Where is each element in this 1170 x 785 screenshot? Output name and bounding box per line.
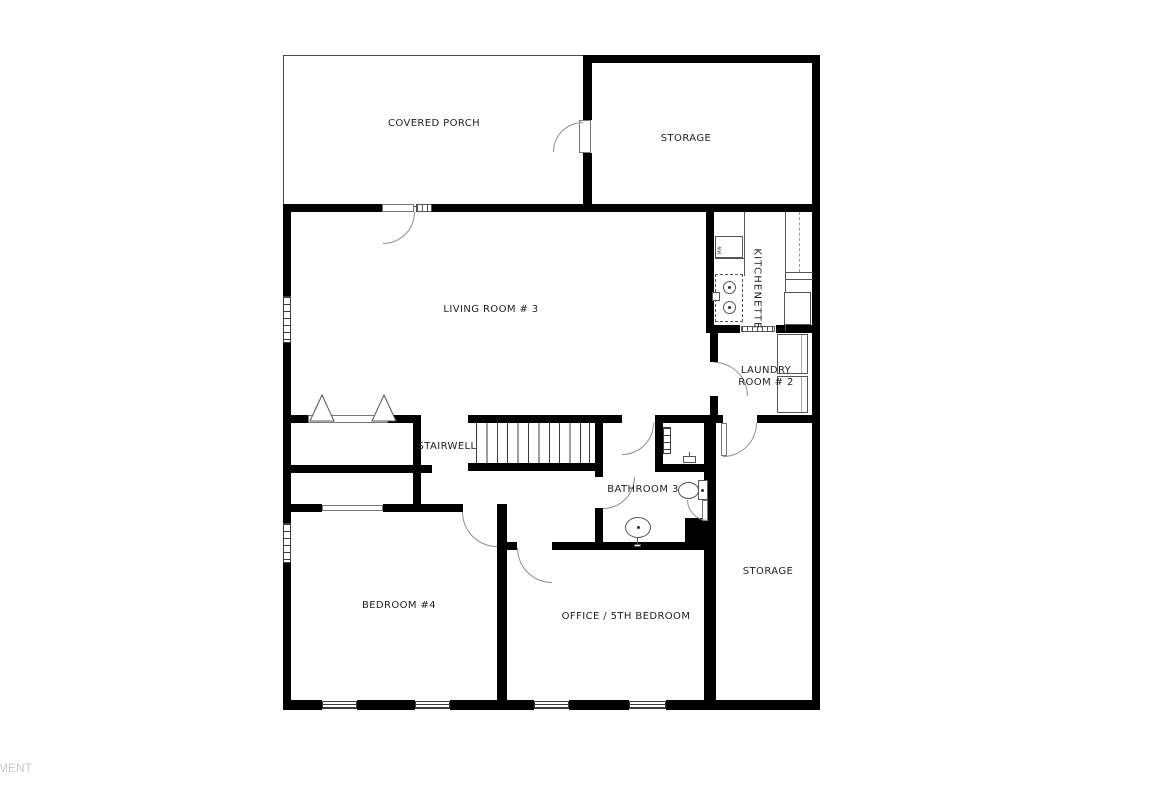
range-knob-icon <box>712 292 720 301</box>
door-arc <box>462 512 497 547</box>
counter-line <box>744 212 745 276</box>
wall <box>432 204 820 212</box>
room-label-bedroom4: BEDROOM #4 <box>362 600 436 612</box>
bifold-panel-icon <box>310 395 334 421</box>
faucet-stem-icon <box>689 452 690 457</box>
wall <box>704 415 723 423</box>
sidelite-window <box>416 204 432 212</box>
wall <box>757 415 820 423</box>
room-label-stairwell: STAIRWELL <box>418 441 477 453</box>
wall <box>710 333 718 362</box>
fridge-icon <box>784 292 811 325</box>
wall <box>666 700 820 710</box>
wall <box>583 55 592 120</box>
wall <box>685 518 706 544</box>
wall <box>283 204 291 296</box>
wall <box>583 153 592 205</box>
door-arc <box>622 423 654 455</box>
faucet-icon <box>683 456 696 463</box>
wall <box>283 700 322 710</box>
counter-line <box>715 258 745 259</box>
wall <box>283 343 291 523</box>
door-arc <box>383 212 415 244</box>
watermark-text: MENT <box>0 761 32 775</box>
door-arc <box>517 548 552 583</box>
window <box>283 296 291 343</box>
wall <box>283 563 291 710</box>
counter-line <box>785 279 813 280</box>
upper-cabinet-line <box>799 212 801 272</box>
wall <box>291 504 322 512</box>
wall <box>497 504 507 512</box>
room-label-kitchenette: KITCHENETTE <box>752 248 763 329</box>
wall <box>655 415 704 423</box>
wall <box>706 212 714 333</box>
room-label-living-room: LIVING ROOM # 3 <box>443 304 538 316</box>
burner-dot-icon <box>728 306 731 309</box>
room-label-covered-porch: COVERED PORCH <box>388 118 480 130</box>
window <box>534 701 569 709</box>
wall <box>283 465 432 473</box>
wall <box>507 542 517 550</box>
sink-tap-base-icon <box>634 544 641 547</box>
wall <box>655 464 704 472</box>
wall <box>450 700 534 710</box>
closet-shelves <box>663 427 671 454</box>
wall <box>776 325 820 333</box>
wall <box>706 325 740 333</box>
toilet-bowl-icon <box>678 482 699 499</box>
counter-line <box>785 272 813 273</box>
bifold-panel-icon <box>372 395 396 421</box>
door-arc <box>723 423 757 457</box>
wall <box>383 504 463 512</box>
bifold-door-icon <box>305 392 400 422</box>
microwave-label: MW <box>717 247 722 254</box>
wall <box>468 463 595 471</box>
door-leaf <box>382 204 414 212</box>
wall <box>595 415 603 477</box>
room-label-storage-right: STORAGE <box>743 566 793 578</box>
room-label-laundry: LAUNDRY ROOM # 2 <box>738 365 794 389</box>
wall <box>569 700 629 710</box>
wall <box>357 700 415 710</box>
burner-dot-icon <box>728 286 731 289</box>
room-label-storage-upper: STORAGE <box>661 133 711 145</box>
wall <box>283 204 382 212</box>
stairs <box>476 423 590 463</box>
room-label-bathroom: BATHROOM 3 <box>607 484 678 496</box>
wall <box>497 512 507 702</box>
sink-drain-icon <box>637 526 640 529</box>
wall <box>704 423 716 702</box>
floor-plan: MW COVERED PORCH STORAGE LIVING ROOM # 3… <box>0 0 1170 785</box>
wall <box>583 55 820 63</box>
porch-outline <box>283 55 587 207</box>
wall <box>812 55 820 710</box>
closet-opening <box>322 505 383 511</box>
toilet-dot-icon <box>701 489 704 492</box>
room-label-office: OFFICE / 5TH BEDROOM <box>562 611 691 623</box>
window <box>415 701 450 709</box>
window <box>629 701 666 709</box>
wall <box>413 415 421 512</box>
window <box>283 523 291 563</box>
window <box>322 701 357 709</box>
